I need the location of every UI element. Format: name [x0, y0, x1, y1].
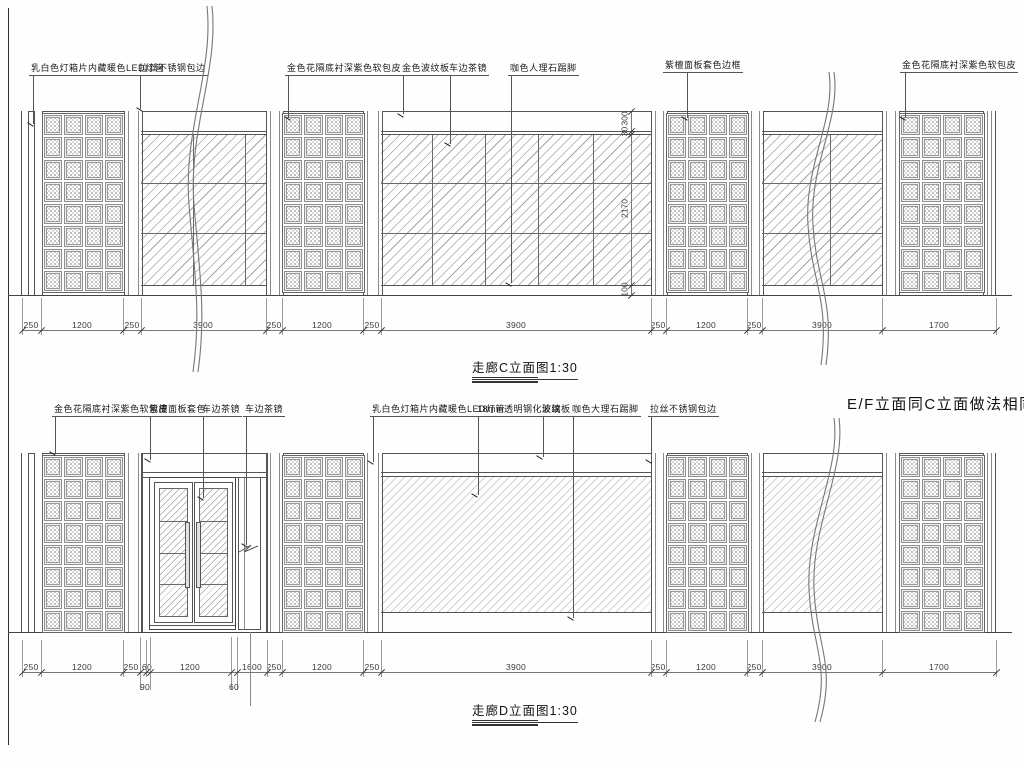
- lattice-tile: [325, 249, 343, 269]
- lattice-tile: [64, 115, 82, 135]
- lattice-tile: [943, 226, 962, 246]
- lattice-tile: [304, 271, 322, 291]
- lattice-tile: [105, 226, 123, 246]
- lattice-tile: [709, 271, 727, 291]
- lightbox-band: [762, 453, 882, 473]
- lattice-tile: [105, 115, 123, 135]
- skirting-line: [141, 285, 266, 286]
- lattice-tile: [105, 204, 123, 224]
- lattice-tile: [901, 271, 920, 291]
- lattice-tile: [668, 160, 686, 180]
- lattice-tile: [688, 501, 706, 521]
- lattice-tile: [729, 589, 747, 609]
- lattice-tile: [943, 479, 962, 499]
- glass-section: [141, 111, 266, 295]
- lattice-tile: [345, 523, 363, 543]
- material-label: 金色花隔底衬深紫色软包皮: [900, 60, 1018, 73]
- lattice-tile: [105, 249, 123, 269]
- lattice-tile: [345, 589, 363, 609]
- lattice-tile: [85, 611, 103, 631]
- lattice-tile: [105, 589, 123, 609]
- sub-dim-value: 90: [125, 683, 165, 692]
- lattice-tile: [922, 479, 941, 499]
- lattice-tile: [345, 457, 363, 477]
- material-label: 拉丝不锈钢包边: [137, 63, 208, 76]
- lattice-tile: [709, 226, 727, 246]
- lattice-tile: [64, 567, 82, 587]
- lattice-tile: [44, 271, 62, 291]
- dim-value: 250: [352, 663, 392, 672]
- lattice-tile: [729, 204, 747, 224]
- lattice-tile: [304, 249, 322, 269]
- lattice-tile: [345, 137, 363, 157]
- dim-value: 2170: [621, 194, 630, 224]
- lattice-tile: [709, 160, 727, 180]
- lattice-tile: [922, 160, 941, 180]
- lattice-tile: [85, 182, 103, 202]
- lattice-tile: [325, 271, 343, 291]
- leader-line: [203, 417, 204, 498]
- leader-line: [543, 417, 544, 457]
- lattice-tile: [44, 137, 62, 157]
- lattice-tile: [943, 611, 962, 631]
- lattice-tile: [901, 611, 920, 631]
- lattice-tile: [64, 611, 82, 631]
- lattice-tile: [688, 457, 706, 477]
- lattice-tile: [943, 160, 962, 180]
- lattice-tile: [729, 479, 747, 499]
- lattice-tile: [688, 249, 706, 269]
- dim-line: [631, 111, 632, 295]
- lattice-tile: [44, 479, 62, 499]
- dim-value: 250: [254, 663, 294, 672]
- lattice-tile: [44, 545, 62, 565]
- lattice-tile: [943, 501, 962, 521]
- lattice-panel: [282, 113, 365, 293]
- lattice-tile: [964, 567, 983, 587]
- dim-value: 3900: [802, 321, 842, 330]
- lattice-tile: [729, 160, 747, 180]
- dim-value: 250: [112, 321, 152, 330]
- lattice-tile: [964, 160, 983, 180]
- lattice-tile: [729, 523, 747, 543]
- lattice-tile: [64, 479, 82, 499]
- lattice-tile: [729, 457, 747, 477]
- dim-value: 250: [11, 663, 51, 672]
- lattice-tile: [284, 457, 302, 477]
- lattice-tile: [964, 226, 983, 246]
- material-label: 车边茶镜: [200, 404, 242, 417]
- title-underline: [472, 720, 538, 726]
- sub-dim-value: 60: [214, 683, 254, 692]
- corrugated-band: [762, 111, 882, 132]
- lattice-tile: [345, 567, 363, 587]
- lattice-tile: [64, 182, 82, 202]
- lattice-tile: [85, 271, 103, 291]
- lattice-tile: [105, 523, 123, 543]
- leader-line: [288, 76, 289, 118]
- lattice-tile: [105, 271, 123, 291]
- lattice-tile: [668, 589, 686, 609]
- dim-value: 3900: [183, 321, 223, 330]
- lattice-tile: [105, 137, 123, 157]
- glass-section: [381, 111, 651, 295]
- lattice-tile: [709, 567, 727, 587]
- material-label: 波纹板: [540, 404, 573, 417]
- lattice-tile: [304, 204, 322, 224]
- lattice-tile: [105, 611, 123, 631]
- lattice-tile: [284, 182, 302, 202]
- lattice-panel: [42, 455, 125, 633]
- lattice-tile: [729, 501, 747, 521]
- lattice-tile: [668, 204, 686, 224]
- lattice-tile: [325, 545, 343, 565]
- lattice-tile: [44, 115, 62, 135]
- lattice-tile: [105, 545, 123, 565]
- lattice-tile: [943, 204, 962, 224]
- lattice-tile: [688, 204, 706, 224]
- lattice-tile: [44, 226, 62, 246]
- lattice-tile: [901, 226, 920, 246]
- lattice-tile: [901, 479, 920, 499]
- lattice-tile: [688, 226, 706, 246]
- lattice-tile: [729, 137, 747, 157]
- dim-value: 250: [638, 321, 678, 330]
- dim-value: 1200: [686, 321, 726, 330]
- lattice-tile: [85, 160, 103, 180]
- lattice-tile: [64, 457, 82, 477]
- lattice-tile: [44, 160, 62, 180]
- lattice-tile: [922, 182, 941, 202]
- lattice-tile: [668, 457, 686, 477]
- lattice-tile: [943, 182, 962, 202]
- lattice-tile: [688, 611, 706, 631]
- lattice-tile: [943, 249, 962, 269]
- lattice-tile: [709, 457, 727, 477]
- lattice-tile: [668, 567, 686, 587]
- lattice-tile: [922, 457, 941, 477]
- lattice-tile: [325, 501, 343, 521]
- lattice-tile: [964, 115, 983, 135]
- lattice-tile: [325, 523, 343, 543]
- dim-value: 1200: [62, 663, 102, 672]
- glass-section: [381, 453, 651, 632]
- dim-value: 3900: [496, 663, 536, 672]
- lattice-tile: [964, 137, 983, 157]
- lattice-tile: [964, 249, 983, 269]
- leader-line: [573, 417, 574, 618]
- glass-section: [762, 453, 882, 632]
- lattice-tile: [85, 501, 103, 521]
- material-label: 紫檀面板套色: [147, 404, 208, 417]
- lattice-tile: [64, 545, 82, 565]
- title-underline: [472, 377, 538, 383]
- lattice-tile: [85, 457, 103, 477]
- leader-line: [373, 417, 374, 462]
- lattice-tile: [668, 226, 686, 246]
- lattice-tile: [284, 501, 302, 521]
- lattice-tile: [943, 271, 962, 291]
- lattice-tile: [964, 204, 983, 224]
- dim-value: 1200: [62, 321, 102, 330]
- pilaster: [882, 453, 900, 632]
- lattice-tile: [105, 479, 123, 499]
- lattice-tile: [688, 589, 706, 609]
- lattice-tile: [284, 137, 302, 157]
- tempered-glass: [381, 477, 651, 612]
- lattice-tile: [688, 182, 706, 202]
- lattice-tile: [668, 249, 686, 269]
- lattice-tile: [85, 523, 103, 543]
- lattice-tile: [922, 501, 941, 521]
- lattice-panel: [282, 455, 365, 633]
- lattice-tile: [284, 589, 302, 609]
- lattice-tile: [668, 271, 686, 291]
- door-handle: [196, 522, 201, 588]
- lattice-panel: [899, 113, 985, 293]
- lattice-tile: [44, 204, 62, 224]
- leader-line: [478, 417, 479, 495]
- lattice-tile: [325, 226, 343, 246]
- skirting-line: [762, 285, 882, 286]
- lattice-tile: [668, 479, 686, 499]
- lattice-tile: [85, 249, 103, 269]
- lattice-tile: [304, 479, 322, 499]
- ef-note: E/F立面同C立面做法相同: [847, 393, 1024, 414]
- lattice-tile: [964, 457, 983, 477]
- lattice-tile: [345, 160, 363, 180]
- lattice-tile: [345, 182, 363, 202]
- lattice-tile: [85, 479, 103, 499]
- lattice-tile: [105, 160, 123, 180]
- lattice-tile: [64, 137, 82, 157]
- dim-value: 1700: [919, 663, 959, 672]
- door-glass: [199, 488, 228, 617]
- lattice-tile: [688, 523, 706, 543]
- lattice-tile: [943, 523, 962, 543]
- lattice-tile: [688, 160, 706, 180]
- dim-value: 3900: [802, 663, 842, 672]
- lattice-tile: [304, 137, 322, 157]
- lattice-tile: [284, 523, 302, 543]
- door-sill: [150, 625, 235, 626]
- lattice-tile: [922, 249, 941, 269]
- lattice-tile: [688, 115, 706, 135]
- lattice-tile: [901, 249, 920, 269]
- lattice-tile: [345, 611, 363, 631]
- lattice-tile: [304, 545, 322, 565]
- extension-line: [250, 632, 251, 706]
- lattice-tile: [688, 545, 706, 565]
- lattice-tile: [284, 249, 302, 269]
- lattice-tile: [709, 204, 727, 224]
- lattice-tile: [44, 182, 62, 202]
- lattice-tile: [709, 115, 727, 135]
- lattice-tile: [64, 204, 82, 224]
- lattice-tile: [325, 611, 343, 631]
- lattice-tile: [922, 137, 941, 157]
- lattice-tile: [345, 226, 363, 246]
- lattice-tile: [901, 182, 920, 202]
- leader-line: [150, 417, 151, 460]
- mirror-glass: [381, 135, 651, 285]
- lattice-tile: [44, 249, 62, 269]
- lattice-tile: [668, 545, 686, 565]
- tempered-glass: [762, 477, 882, 612]
- lattice-tile: [85, 567, 103, 587]
- lattice-tile: [325, 115, 343, 135]
- lattice-tile: [325, 567, 343, 587]
- lattice-tile: [688, 479, 706, 499]
- lattice-tile: [345, 249, 363, 269]
- lattice-tile: [922, 115, 941, 135]
- lattice-tile: [345, 479, 363, 499]
- dim-value: 1200: [302, 321, 342, 330]
- lattice-tile: [85, 589, 103, 609]
- lattice-tile: [709, 182, 727, 202]
- lattice-tile: [688, 271, 706, 291]
- lattice-tile: [325, 479, 343, 499]
- leader-line: [687, 73, 688, 118]
- skirting-line: [762, 612, 882, 613]
- lattice-tile: [922, 523, 941, 543]
- lattice-tile: [284, 479, 302, 499]
- lattice-tile: [901, 137, 920, 157]
- leader-line: [651, 417, 652, 461]
- lattice-tile: [44, 457, 62, 477]
- corrugated-band: [141, 111, 266, 132]
- lattice-tile: [668, 501, 686, 521]
- lattice-tile: [964, 589, 983, 609]
- lattice-tile: [304, 611, 322, 631]
- lattice-tile: [729, 271, 747, 291]
- lattice-panel: [666, 455, 749, 633]
- lattice-tile: [345, 271, 363, 291]
- lattice-tile: [688, 567, 706, 587]
- material-label: 金色波纹板: [400, 63, 452, 76]
- material-label: 金色花隔底衬深紫色软包皮: [285, 63, 403, 76]
- lattice-tile: [304, 501, 322, 521]
- lattice-tile: [943, 115, 962, 135]
- page-frame-line: [8, 8, 9, 745]
- dim-value: 250: [638, 663, 678, 672]
- lattice-tile: [85, 204, 103, 224]
- dim-value: 30: [621, 117, 630, 147]
- lattice-tile: [284, 545, 302, 565]
- lattice-tile: [304, 567, 322, 587]
- lattice-tile: [668, 137, 686, 157]
- dim-value: 1200: [686, 663, 726, 672]
- lattice-tile: [44, 501, 62, 521]
- dim-value: 1700: [919, 321, 959, 330]
- lattice-tile: [922, 271, 941, 291]
- lattice-tile: [64, 523, 82, 543]
- corrugated-band: [381, 111, 651, 132]
- lattice-tile: [901, 160, 920, 180]
- dim-value: 1200: [302, 663, 342, 672]
- lattice-tile: [709, 501, 727, 521]
- lattice-tile: [64, 501, 82, 521]
- lattice-tile: [729, 249, 747, 269]
- lattice-tile: [964, 523, 983, 543]
- door-glass: [159, 488, 188, 617]
- lattice-tile: [44, 567, 62, 587]
- lattice-tile: [325, 137, 343, 157]
- lattice-tile: [44, 523, 62, 543]
- lattice-tile: [709, 249, 727, 269]
- lattice-tile: [964, 545, 983, 565]
- dim-line: [22, 672, 996, 673]
- drawing-canvas: 300 30 2170 100 乳白色灯箱片内藏暖色LED灯管 拉丝不锈钢包边 …: [0, 0, 1024, 768]
- lattice-tile: [345, 501, 363, 521]
- lattice-tile: [325, 589, 343, 609]
- lattice-tile: [901, 457, 920, 477]
- lattice-tile: [729, 611, 747, 631]
- lattice-tile: [901, 501, 920, 521]
- lattice-tile: [729, 182, 747, 202]
- lattice-tile: [345, 115, 363, 135]
- lattice-tile: [304, 589, 322, 609]
- lattice-tile: [304, 226, 322, 246]
- lattice-tile: [709, 479, 727, 499]
- dim-value: 250: [11, 321, 51, 330]
- lattice-tile: [668, 611, 686, 631]
- dim-value: 250: [352, 321, 392, 330]
- lattice-tile: [943, 457, 962, 477]
- lattice-tile: [85, 545, 103, 565]
- pilaster: [363, 111, 383, 295]
- pilaster: [363, 453, 383, 632]
- lightbox-band: [381, 453, 651, 473]
- leader-line: [905, 73, 906, 118]
- dim-value: 3900: [496, 321, 536, 330]
- lattice-tile: [709, 545, 727, 565]
- lattice-tile: [729, 567, 747, 587]
- lattice-tile: [85, 137, 103, 157]
- material-label: 车边茶镜: [243, 404, 285, 417]
- lattice-tile: [964, 271, 983, 291]
- door-side-panel: [238, 477, 261, 630]
- pilaster: [882, 111, 900, 295]
- leader-line: [511, 76, 512, 283]
- lattice-tile: [284, 226, 302, 246]
- lattice-tile: [325, 160, 343, 180]
- lattice-tile: [304, 523, 322, 543]
- lattice-tile: [304, 457, 322, 477]
- lattice-tile: [44, 589, 62, 609]
- dim-value: 250: [734, 663, 774, 672]
- lattice-panel: [42, 113, 125, 293]
- lattice-tile: [325, 457, 343, 477]
- lattice-tile: [709, 589, 727, 609]
- lattice-tile: [64, 160, 82, 180]
- lattice-tile: [709, 611, 727, 631]
- double-door: [149, 477, 236, 630]
- elevation-d-baseline: [8, 632, 1012, 633]
- wall-edge-left: [21, 453, 29, 632]
- lattice-tile: [964, 611, 983, 631]
- leader-line: [403, 76, 404, 114]
- door-handle: [185, 522, 190, 588]
- leader-line: [450, 76, 451, 144]
- door-section: [141, 453, 268, 632]
- material-label: 紫檀面板套色边框: [663, 60, 743, 73]
- lattice-tile: [64, 249, 82, 269]
- elevation-c-baseline: [8, 295, 1012, 296]
- dim-value: 250: [254, 321, 294, 330]
- lattice-tile: [943, 567, 962, 587]
- lattice-tile: [922, 567, 941, 587]
